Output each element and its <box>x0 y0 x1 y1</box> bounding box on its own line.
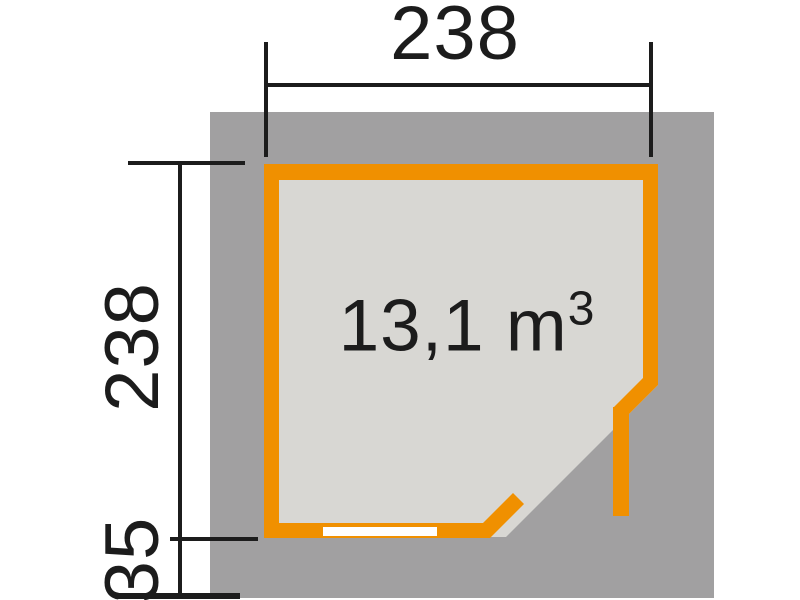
dim-overhang-value: 35 <box>95 517 171 600</box>
wall-left <box>264 164 279 538</box>
volume-label: 13,1 m3 <box>339 290 596 363</box>
volume-exponent: 3 <box>568 283 596 336</box>
wall-right <box>643 164 658 385</box>
door-leaf <box>613 407 629 516</box>
floorplan-diagram: 238 238 35 13,1 m3 <box>0 0 800 600</box>
dim-width-value: 238 <box>390 0 520 72</box>
volume-value: 13,1 m <box>339 286 568 367</box>
wall-top <box>264 164 658 180</box>
dim-depth-value: 238 <box>95 282 171 412</box>
window-bottom <box>323 527 437 536</box>
